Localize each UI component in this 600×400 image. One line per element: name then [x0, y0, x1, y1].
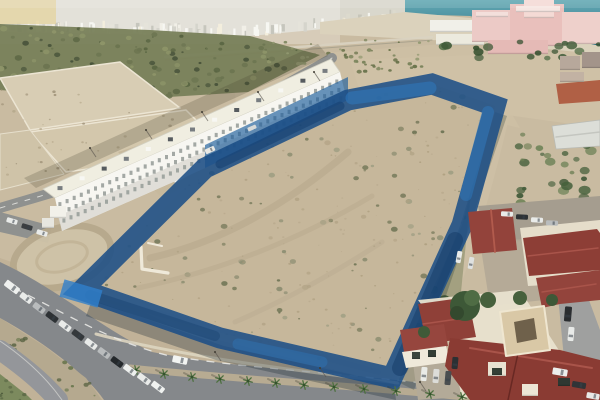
bl-median-shrubs-shrub: [84, 383, 89, 387]
lot-speckle-shrub: [277, 227, 279, 228]
lot-speckle-shrub: [401, 300, 403, 302]
lot-speckle-shrub: [288, 263, 291, 265]
lot-speckle-shrub: [245, 179, 248, 181]
building-windows-window: [91, 206, 94, 210]
lot-speckle-shrub: [341, 197, 343, 198]
lot-speckle-shrub: [158, 233, 159, 234]
far-right-veg-shrub: [581, 177, 587, 182]
lot-speckle-shrub: [436, 137, 439, 139]
lot-shrubs-shrub: [354, 263, 357, 265]
lot-shrubs-shrub: [269, 236, 273, 239]
median-palms-crown: [303, 384, 306, 387]
building-annex-shade: [50, 217, 66, 218]
scrub-texture-shrub: [291, 47, 294, 49]
scrub-texture-shrub: [127, 60, 133, 65]
lot-shrubs-shrub: [355, 162, 358, 164]
lot-shrubs-shrub: [420, 274, 427, 279]
lot-shrubs-shrub: [277, 279, 280, 281]
lot-speckle-shrub: [298, 222, 301, 224]
lot-speckle-shrub: [374, 285, 376, 286]
median-palms-crown: [219, 378, 222, 381]
lot-speckle-shrub: [396, 262, 399, 264]
light-poles-pole: [145, 129, 147, 131]
bl-median-shrubs-shrub: [23, 337, 28, 341]
scrub-texture-shrub: [213, 57, 216, 59]
scrub-mid-shrub: [354, 52, 358, 55]
cars-car: [531, 217, 543, 223]
light-poles-pole: [319, 367, 321, 369]
building-windows-window: [112, 197, 115, 201]
hotel-trees-shrub: [473, 48, 483, 56]
building-windows-window: [153, 170, 156, 174]
building-windows-window: [148, 181, 151, 185]
lot-speckle-shrub: [344, 230, 345, 231]
far-right-veg-shrub: [570, 171, 575, 175]
building-windows-window: [165, 155, 168, 159]
lot-speckle-shrub: [379, 357, 381, 358]
lot-shrubs-shrub: [371, 165, 374, 167]
light-poles-pole: [257, 91, 259, 93]
building-windows-window: [172, 152, 175, 156]
building-windows-window: [62, 218, 65, 222]
lot-speckle-shrub: [331, 323, 333, 324]
roof-units-unit: [168, 137, 173, 141]
building-annex: [50, 206, 66, 218]
building-windows-window: [200, 139, 203, 143]
bl-verge-bushes-shrub: [1, 393, 3, 395]
lot-shrubs-shrub: [365, 308, 367, 310]
lot-speckle-shrub: [349, 327, 351, 329]
building-annex: [42, 218, 54, 228]
scrub-texture-shrub: [48, 44, 52, 47]
lot-shrubs-shrub: [277, 308, 283, 312]
lot-shrubs-shrub: [376, 204, 379, 206]
roof-units-unit: [234, 108, 239, 112]
scrub-mid-shrub: [339, 48, 342, 50]
lot-shrubs-shrub: [287, 153, 292, 157]
scrub-mid-shrub: [427, 40, 430, 42]
building-windows-window: [82, 201, 85, 205]
bl-median-shrubs-shrub: [62, 361, 67, 365]
lot-shrubs-shrub: [295, 198, 300, 201]
building-windows-window: [141, 184, 144, 188]
building-windows-window: [243, 120, 246, 124]
median-palms-crown: [363, 388, 366, 391]
building-windows-window: [110, 188, 113, 192]
scrub-mid-shrub: [344, 56, 348, 59]
scrub-mid-shrub: [381, 68, 384, 70]
building-windows-window: [167, 163, 170, 167]
scrub-texture-shrub: [186, 47, 191, 51]
lot-speckle-shrub: [344, 218, 347, 220]
lot-shrubs-shrub: [249, 202, 252, 204]
cars-car: [564, 306, 572, 322]
lot-speckle-shrub: [454, 157, 456, 159]
lot-speckle-shrub: [389, 340, 391, 342]
lot-shrubs-shrub: [262, 323, 266, 326]
lot-speckle-shrub: [354, 110, 356, 112]
cars-windshield: [523, 215, 525, 219]
hotel-trees-shrub: [527, 54, 535, 60]
scrub-mid-shrub: [408, 62, 413, 65]
field-dots-shrub: [60, 149, 62, 150]
lot-speckle-shrub: [441, 192, 444, 194]
building-windows-window: [70, 215, 73, 219]
scrub-mid-shrub: [388, 69, 392, 72]
lot-speckle-shrub: [454, 190, 456, 191]
building-windows-window: [293, 98, 296, 102]
field-dots-shrub: [81, 141, 84, 143]
lot-shrubs-shrub: [335, 221, 339, 224]
lot-shrubs-shrub: [200, 208, 205, 212]
lot-shrubs-shrub: [284, 291, 288, 294]
lot-shrubs-shrub: [406, 147, 412, 151]
lot-speckle-shrub: [419, 161, 421, 163]
median-palms-crown: [191, 376, 194, 379]
lot-shrubs-shrub: [301, 208, 304, 210]
roof-units-unit: [58, 186, 63, 190]
pink-hotel-shade: [516, 11, 560, 12]
lot-shrubs-shrub: [351, 270, 353, 272]
house-front-doors-shade: [412, 358, 420, 359]
big-trees: [418, 326, 430, 338]
roof-units-unit: [102, 167, 107, 171]
building-windows-window: [215, 133, 218, 137]
lot-speckle-shrub: [341, 251, 342, 252]
scrub-texture-shrub: [30, 27, 33, 30]
scrub-texture-shrub: [74, 57, 80, 61]
lot-shrubs-shrub: [326, 325, 329, 327]
far-right-veg-shrub: [561, 162, 569, 168]
lot-shrubs-shrub: [362, 165, 368, 170]
lot-speckle-shrub: [431, 244, 433, 246]
scrub-texture-shrub: [40, 50, 43, 52]
lot-speckle-shrub: [402, 239, 403, 240]
scrub-texture-shrub: [135, 46, 137, 48]
lot-speckle-shrub: [360, 275, 362, 277]
field-dots-shrub: [82, 123, 85, 125]
field-dots-shrub: [38, 161, 40, 162]
scrub-texture-shrub: [258, 46, 264, 50]
building-windows-window: [115, 177, 118, 181]
hotel-trees-shrub: [552, 49, 559, 54]
storefronts-shade: [558, 385, 570, 386]
lot-shrubs-shrub: [451, 105, 457, 110]
scrub-texture-shrub: [149, 61, 155, 65]
building-windows-window: [176, 168, 179, 172]
field-dots-shrub: [6, 167, 8, 168]
cars-windshield: [446, 379, 451, 382]
lot-shrubs-shrub: [393, 239, 397, 242]
lot-speckle-shrub: [342, 233, 344, 235]
lot-speckle-shrub: [140, 282, 141, 283]
storefronts: [522, 384, 538, 396]
lot-shrubs-shrub: [234, 275, 239, 279]
scrub-mid-shrub: [349, 55, 354, 59]
scrub-mid-shrub: [358, 56, 362, 59]
far-right-veg-shrub: [516, 187, 525, 194]
lot-shrubs-shrub: [391, 227, 398, 232]
scrub-mid-shrub: [393, 54, 396, 56]
building-windows-window: [162, 175, 165, 179]
far-right-veg-shrub: [515, 143, 523, 149]
building-windows-window: [146, 173, 149, 177]
cars-car-body: [451, 357, 458, 369]
scrub-texture-shrub: [214, 83, 218, 86]
scrub-texture-shrub: [174, 69, 180, 73]
lot-speckle-shrub: [443, 199, 446, 201]
lot-speckle-shrub: [231, 170, 233, 171]
building-windows-window: [250, 117, 253, 121]
light-poles-pole: [214, 351, 216, 353]
lot-shrubs-shrub: [260, 203, 263, 205]
lot-shrubs-shrub: [251, 331, 253, 333]
scrub-texture-shrub: [173, 89, 180, 95]
scrub-texture-shrub: [73, 37, 80, 42]
field-dots-shrub: [1, 103, 4, 105]
field-dots-shrub: [38, 147, 41, 149]
scrub-texture-shrub: [11, 36, 15, 39]
median-palms-crown: [247, 380, 250, 383]
lot-speckle-shrub: [326, 271, 327, 272]
building-windows-window: [103, 191, 106, 195]
building-windows-window: [179, 149, 182, 153]
scrub-texture-shrub: [181, 43, 186, 46]
far-right-veg-shrub: [545, 158, 556, 166]
pink-hotel-shade: [476, 16, 508, 17]
lot-speckle-shrub: [431, 154, 433, 155]
scrub-texture-shrub: [21, 67, 27, 72]
scrub-texture-shrub: [130, 65, 134, 68]
scrub-texture-shrub: [60, 31, 64, 34]
lot-speckle-shrub: [316, 189, 318, 191]
building-windows-window: [169, 171, 172, 175]
hotel-trees-shrub: [554, 43, 563, 50]
bl-median-shrubs-shrub: [68, 366, 73, 370]
building-windows-window: [257, 114, 260, 118]
far-right-veg-shrub: [580, 167, 590, 174]
scrub-mid-shrub: [286, 52, 289, 54]
gray-roof-cluster: [560, 56, 580, 70]
bl-median-shrubs-shrub: [12, 343, 17, 346]
scrub-texture-shrub: [269, 57, 275, 62]
scrub-texture-shrub: [244, 45, 250, 49]
median-palms-crown: [163, 373, 166, 376]
lot-shrubs-shrub: [412, 255, 415, 257]
lot-shrubs-shrub: [414, 134, 417, 136]
cars-car-body: [444, 371, 451, 385]
lot-speckle-shrub: [425, 102, 426, 103]
building-windows-window: [160, 166, 163, 170]
lot-speckle-shrub: [269, 292, 271, 294]
lot-speckle-shrub: [332, 332, 334, 333]
lot-speckle-shrub: [312, 298, 315, 300]
scrub-texture-shrub: [191, 77, 198, 83]
bl-median-shrubs-shrub: [94, 395, 96, 397]
scrub-texture-shrub: [194, 67, 200, 71]
lot-speckle-shrub: [224, 213, 226, 215]
scrub-texture-shrub: [15, 55, 22, 61]
storefronts-shade: [522, 395, 538, 396]
lot-shrubs-shrub: [353, 176, 359, 180]
lot-speckle-shrub: [335, 155, 337, 156]
lot-speckle-shrub: [376, 184, 378, 185]
scrub-texture-shrub: [166, 51, 171, 55]
lot-shrubs-shrub: [105, 284, 108, 286]
lot-speckle-shrub: [424, 216, 426, 217]
lot-speckle-shrub: [338, 328, 340, 330]
cars-car: [451, 357, 458, 369]
hotel-trees-shrub: [544, 56, 550, 61]
lot-speckle-shrub: [410, 151, 412, 153]
building-windows-window: [181, 157, 184, 161]
far-right-veg-shrub: [524, 143, 532, 149]
field-dots-shrub: [42, 124, 43, 125]
lot-speckle-shrub: [458, 166, 459, 167]
scrub-texture-shrub: [199, 62, 202, 64]
scrub-mid-shrub: [310, 43, 312, 45]
far-right-veg-shrub: [540, 153, 544, 156]
lot-speckle-shrub: [443, 174, 446, 176]
far-right-veg-shrub: [544, 153, 551, 158]
lot-speckle-shrub: [331, 155, 333, 156]
scrub-mid-shrub: [388, 49, 391, 51]
far-right-veg-shrub: [520, 158, 524, 161]
building-windows-window: [101, 183, 104, 187]
big-trees: [546, 294, 558, 306]
lot-shrubs-shrub: [458, 191, 460, 193]
pink-hotel-shade: [524, 17, 554, 18]
scrub-mid-shrub: [272, 42, 275, 44]
lot-speckle-shrub: [366, 120, 368, 121]
building-windows-window: [80, 193, 83, 197]
far-right-veg-shrub: [573, 157, 579, 162]
building-windows-window: [131, 179, 134, 183]
scrub-mid-shrub: [371, 64, 373, 66]
cars-car-body: [564, 306, 572, 322]
terracotta-building: [556, 80, 600, 104]
hotel-trees-shrub: [517, 40, 524, 45]
scrub-mid-shrub: [412, 65, 417, 69]
scrub-mid-shrub: [354, 60, 358, 63]
field-dots-shrub: [39, 128, 42, 130]
scrub-mid-shrub: [373, 65, 376, 67]
scrub-texture-shrub: [193, 88, 197, 91]
roof-units-unit: [300, 79, 305, 83]
building-windows-window: [117, 185, 120, 189]
building-windows-window: [89, 198, 92, 202]
lot-speckle-shrub: [177, 235, 180, 237]
cars-windshield: [453, 363, 458, 366]
scene-canvas: [0, 0, 600, 400]
scrub-texture-shrub: [115, 44, 120, 48]
condo-row: [430, 20, 472, 32]
scrub-texture-shrub: [174, 63, 180, 67]
lot-shrubs-shrub: [437, 235, 444, 240]
lot-shrubs-shrub: [222, 243, 226, 246]
scene-root: [0, 0, 600, 400]
lot-speckle-shrub: [221, 271, 222, 272]
lot-shrubs-shrub: [221, 281, 227, 286]
big-trees: [480, 292, 496, 308]
cars-car-body: [516, 214, 528, 220]
lot-speckle-shrub: [282, 236, 284, 238]
lot-shrubs-shrub: [400, 194, 406, 198]
building-windows-window: [75, 204, 78, 208]
lot-shrubs-shrub: [282, 250, 286, 253]
roof-units-unit: [80, 176, 85, 180]
hotel-trees-shrub: [441, 42, 452, 50]
lot-shrubs-shrub: [364, 170, 367, 172]
scrub-mid-shrub: [417, 54, 420, 56]
roof-units-unit: [212, 118, 217, 122]
lot-speckle-shrub: [273, 222, 276, 224]
scrub-texture-shrub: [220, 76, 224, 79]
gray-roof-cluster-shade: [560, 69, 580, 70]
cars-car: [567, 327, 574, 341]
cars-car-body: [567, 327, 574, 341]
lot-shrubs-shrub: [269, 173, 275, 178]
scrub-texture-shrub: [214, 68, 221, 73]
scrub-mid-shrub: [420, 65, 424, 68]
scrub-texture-shrub: [61, 38, 65, 41]
median-palms-crown: [461, 396, 464, 399]
scrub-texture-shrub: [145, 51, 147, 53]
building-windows-window: [66, 199, 69, 203]
lot-speckle-shrub: [373, 239, 376, 241]
cars-windshield: [422, 375, 427, 378]
field-dots-shrub: [128, 112, 130, 113]
cars-windshield: [538, 218, 540, 222]
building-windows-window: [139, 176, 142, 180]
cars-car: [432, 369, 439, 383]
lot-shrubs-shrub: [392, 174, 397, 178]
gray-roof-cluster: [560, 72, 584, 82]
bl-verge-bushes-shrub: [8, 386, 12, 389]
building-windows-window: [186, 146, 189, 150]
far-right-veg-shrub: [579, 186, 591, 195]
lot-speckle-shrub: [308, 301, 310, 303]
light-poles-pole: [201, 111, 203, 113]
field-dots-shrub: [40, 161, 43, 163]
lot-shrubs-shrub: [232, 287, 237, 290]
building-windows-window: [126, 190, 129, 194]
building-windows-window: [77, 212, 80, 216]
building-windows-window: [195, 151, 198, 155]
field-dots-shrub: [127, 118, 128, 119]
building-windows-window: [158, 158, 161, 162]
scrub-mid-shrub: [379, 61, 382, 63]
light-poles-pole: [89, 147, 91, 149]
cars-car-body: [546, 220, 558, 226]
field-dots-shrub: [12, 110, 15, 113]
lot-speckle-shrub: [350, 322, 353, 324]
scrub-texture-shrub: [22, 41, 29, 46]
lot-shrubs-shrub: [408, 224, 414, 229]
lot-shrubs-shrub: [448, 171, 453, 175]
scrub-texture-shrub: [242, 63, 248, 68]
lot-shrubs-shrub: [431, 237, 435, 240]
boundary-corner-sign: [62, 288, 100, 299]
light-poles-pole: [313, 71, 315, 73]
scrub-mid-shrub: [364, 64, 367, 66]
lot-speckle-shrub: [458, 107, 460, 108]
field-dots-shrub: [54, 94, 57, 96]
building-windows-window: [236, 124, 239, 128]
big-trees: [464, 290, 480, 306]
building-windows-window: [133, 187, 136, 191]
lot-speckle-shrub: [388, 338, 390, 340]
